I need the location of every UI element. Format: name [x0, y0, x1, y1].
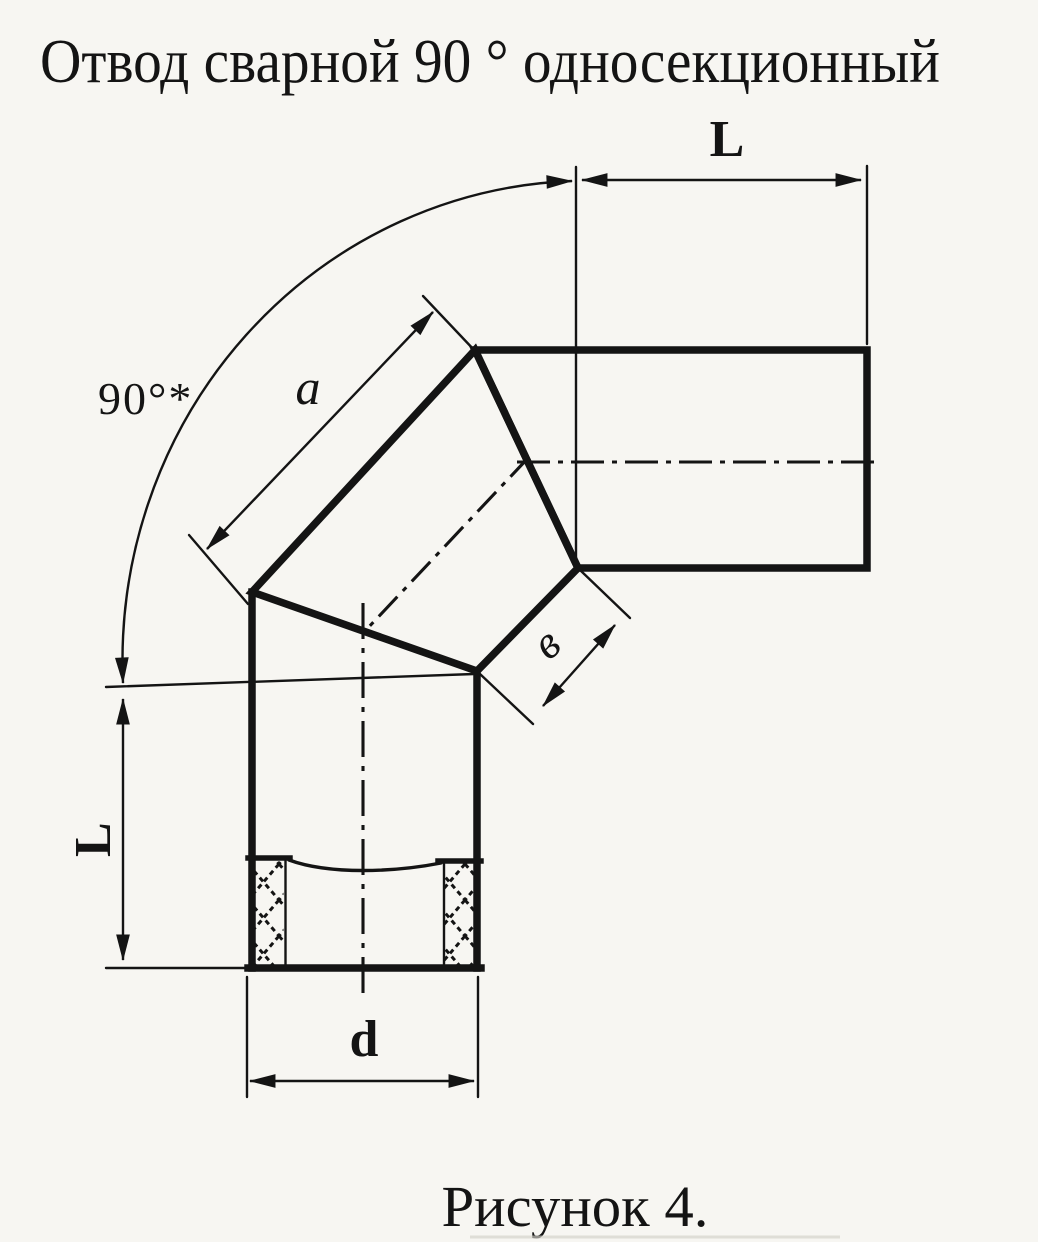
drawing-sheet: Отвод сварной 90 ° односекционный — [0, 0, 1038, 1242]
figure-caption: Рисунок 4. — [442, 1174, 709, 1239]
centerlines — [363, 457, 877, 1001]
centerline-middle-section — [366, 457, 529, 630]
label-angle-90: 90°* — [98, 373, 193, 424]
drawing-title: Отвод сварной 90 ° односекционный — [40, 28, 940, 96]
elbow-technical-drawing: Отвод сварной 90 ° односекционный — [0, 0, 1038, 1242]
horizontal-pipe-outline — [475, 350, 867, 568]
label-diameter-d: d — [350, 1011, 379, 1068]
ext-tick-a-lower — [189, 535, 248, 604]
ext-line-v-lower — [480, 674, 533, 724]
wall-hatch-left — [253, 860, 284, 966]
dim-arc-90deg — [122, 181, 572, 683]
label-left-L: L — [65, 822, 122, 857]
dimension-lines — [122, 180, 861, 1081]
ext-tick-a-upper — [423, 296, 476, 352]
label-top-L: L — [710, 111, 745, 168]
break-line — [289, 860, 441, 871]
ext-line-left-upper — [106, 674, 474, 687]
label-side-v: в — [522, 617, 570, 669]
wall-hatch-right — [445, 863, 476, 966]
ext-line-v-upper — [580, 570, 630, 618]
label-side-a: a — [296, 359, 321, 415]
extension-lines — [106, 166, 867, 1097]
